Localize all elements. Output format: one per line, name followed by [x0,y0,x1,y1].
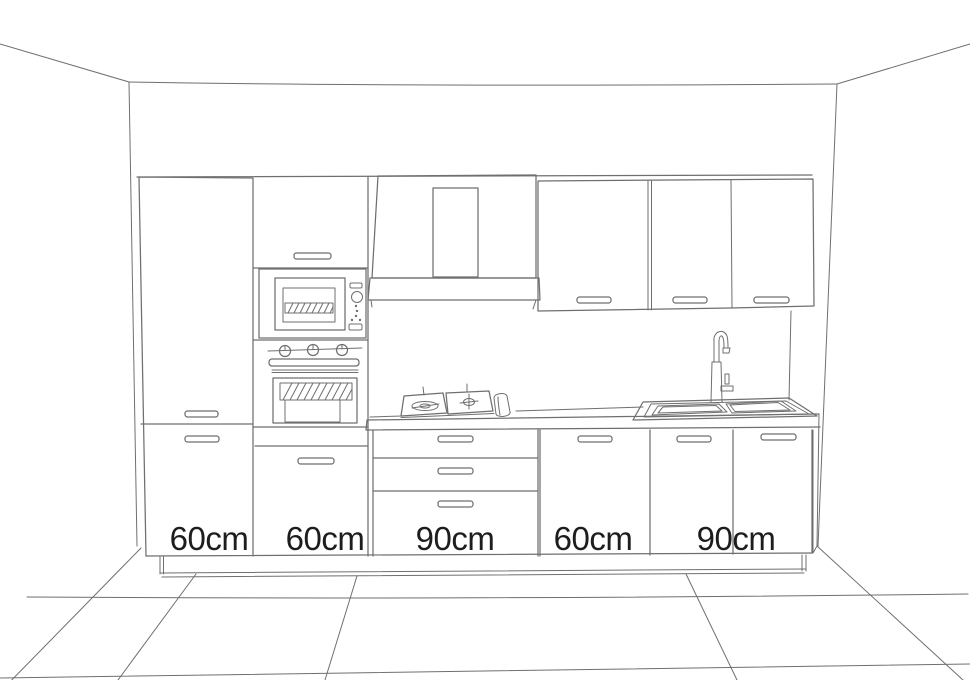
door-handle [577,297,611,303]
room-outline [0,44,970,546]
sink [633,398,817,420]
microwave-window [283,288,335,322]
width-label-5: 90cm [697,520,776,557]
hood-canopy [368,278,540,300]
microwave-button [349,324,362,330]
door-handle [185,436,219,442]
width-label-1: 60cm [170,520,249,557]
drawer-handle [438,468,473,474]
sketch-canvas: 60cm 60cm 90cm 60cm 90cm [0,0,970,680]
burner-cross [412,387,439,408]
oven [268,345,362,424]
counter-canister [494,394,510,417]
wall-cabinets [538,179,814,311]
kitchen-sketch: 60cm 60cm 90cm 60cm 90cm [0,0,970,680]
microwave-button [350,283,362,288]
faucet-gooseneck [714,331,728,348]
plinth [160,555,806,577]
width-label-3: 90cm [416,520,495,557]
microwave-indicator-dot [359,319,361,321]
wall-corner-right [818,84,837,546]
faucet-lever [721,374,733,391]
oven-handle [269,359,359,366]
microwave-rack-hatch [288,303,333,313]
floor-edge-left [0,548,141,680]
sink-bowl-left [652,404,727,415]
microwave [259,269,366,338]
sink-bowl-right [726,401,796,413]
door-handle [185,411,218,417]
door-handle [754,297,789,303]
wall-corner-left [129,82,137,546]
width-labels: 60cm 60cm 90cm 60cm 90cm [170,520,776,557]
hood-panel [372,175,536,278]
microwave-indicator-dot [355,305,357,307]
tall-cabinet-outline [139,177,253,556]
oven-vent [272,370,358,373]
floor [0,546,970,680]
hood-duct [433,188,478,277]
floor-tile-lines [0,574,970,680]
range-hood [368,175,540,309]
ceiling-edge-right [837,44,970,84]
microwave-indicator-dot [355,315,357,317]
width-label-2: 60cm [286,520,365,557]
microwave-indicator-dot [351,319,353,321]
backsplash-edge [789,311,791,400]
door-handle [578,436,612,442]
tall-cabinet [139,177,253,556]
hood-canopy-lip [371,300,536,309]
microwave-indicator-dot [356,310,358,312]
door-handle [294,253,331,259]
ceiling-edge-back [129,82,837,85]
faucet-body [711,341,722,402]
door-handle [677,436,711,442]
drawer-handle [438,501,473,507]
ceiling-edge-left [0,44,129,82]
faucet-spout-tip [723,348,730,353]
oven-rack-hatch [283,383,352,400]
faucet [711,331,733,402]
wall-cabinet-divider [648,180,732,310]
burner-cross [460,384,478,409]
plinth-bottom [160,569,806,577]
oven-inner-panel [285,400,340,422]
width-label-4: 60cm [554,520,633,557]
door-handle [298,458,334,464]
cooktop [401,384,510,418]
door-handle [673,297,707,303]
floor-edge-right [817,546,963,680]
microwave-knob [352,292,363,303]
wall-cabinets-outline [538,179,814,311]
drawer-handle [438,436,473,442]
door-handle [761,434,796,440]
